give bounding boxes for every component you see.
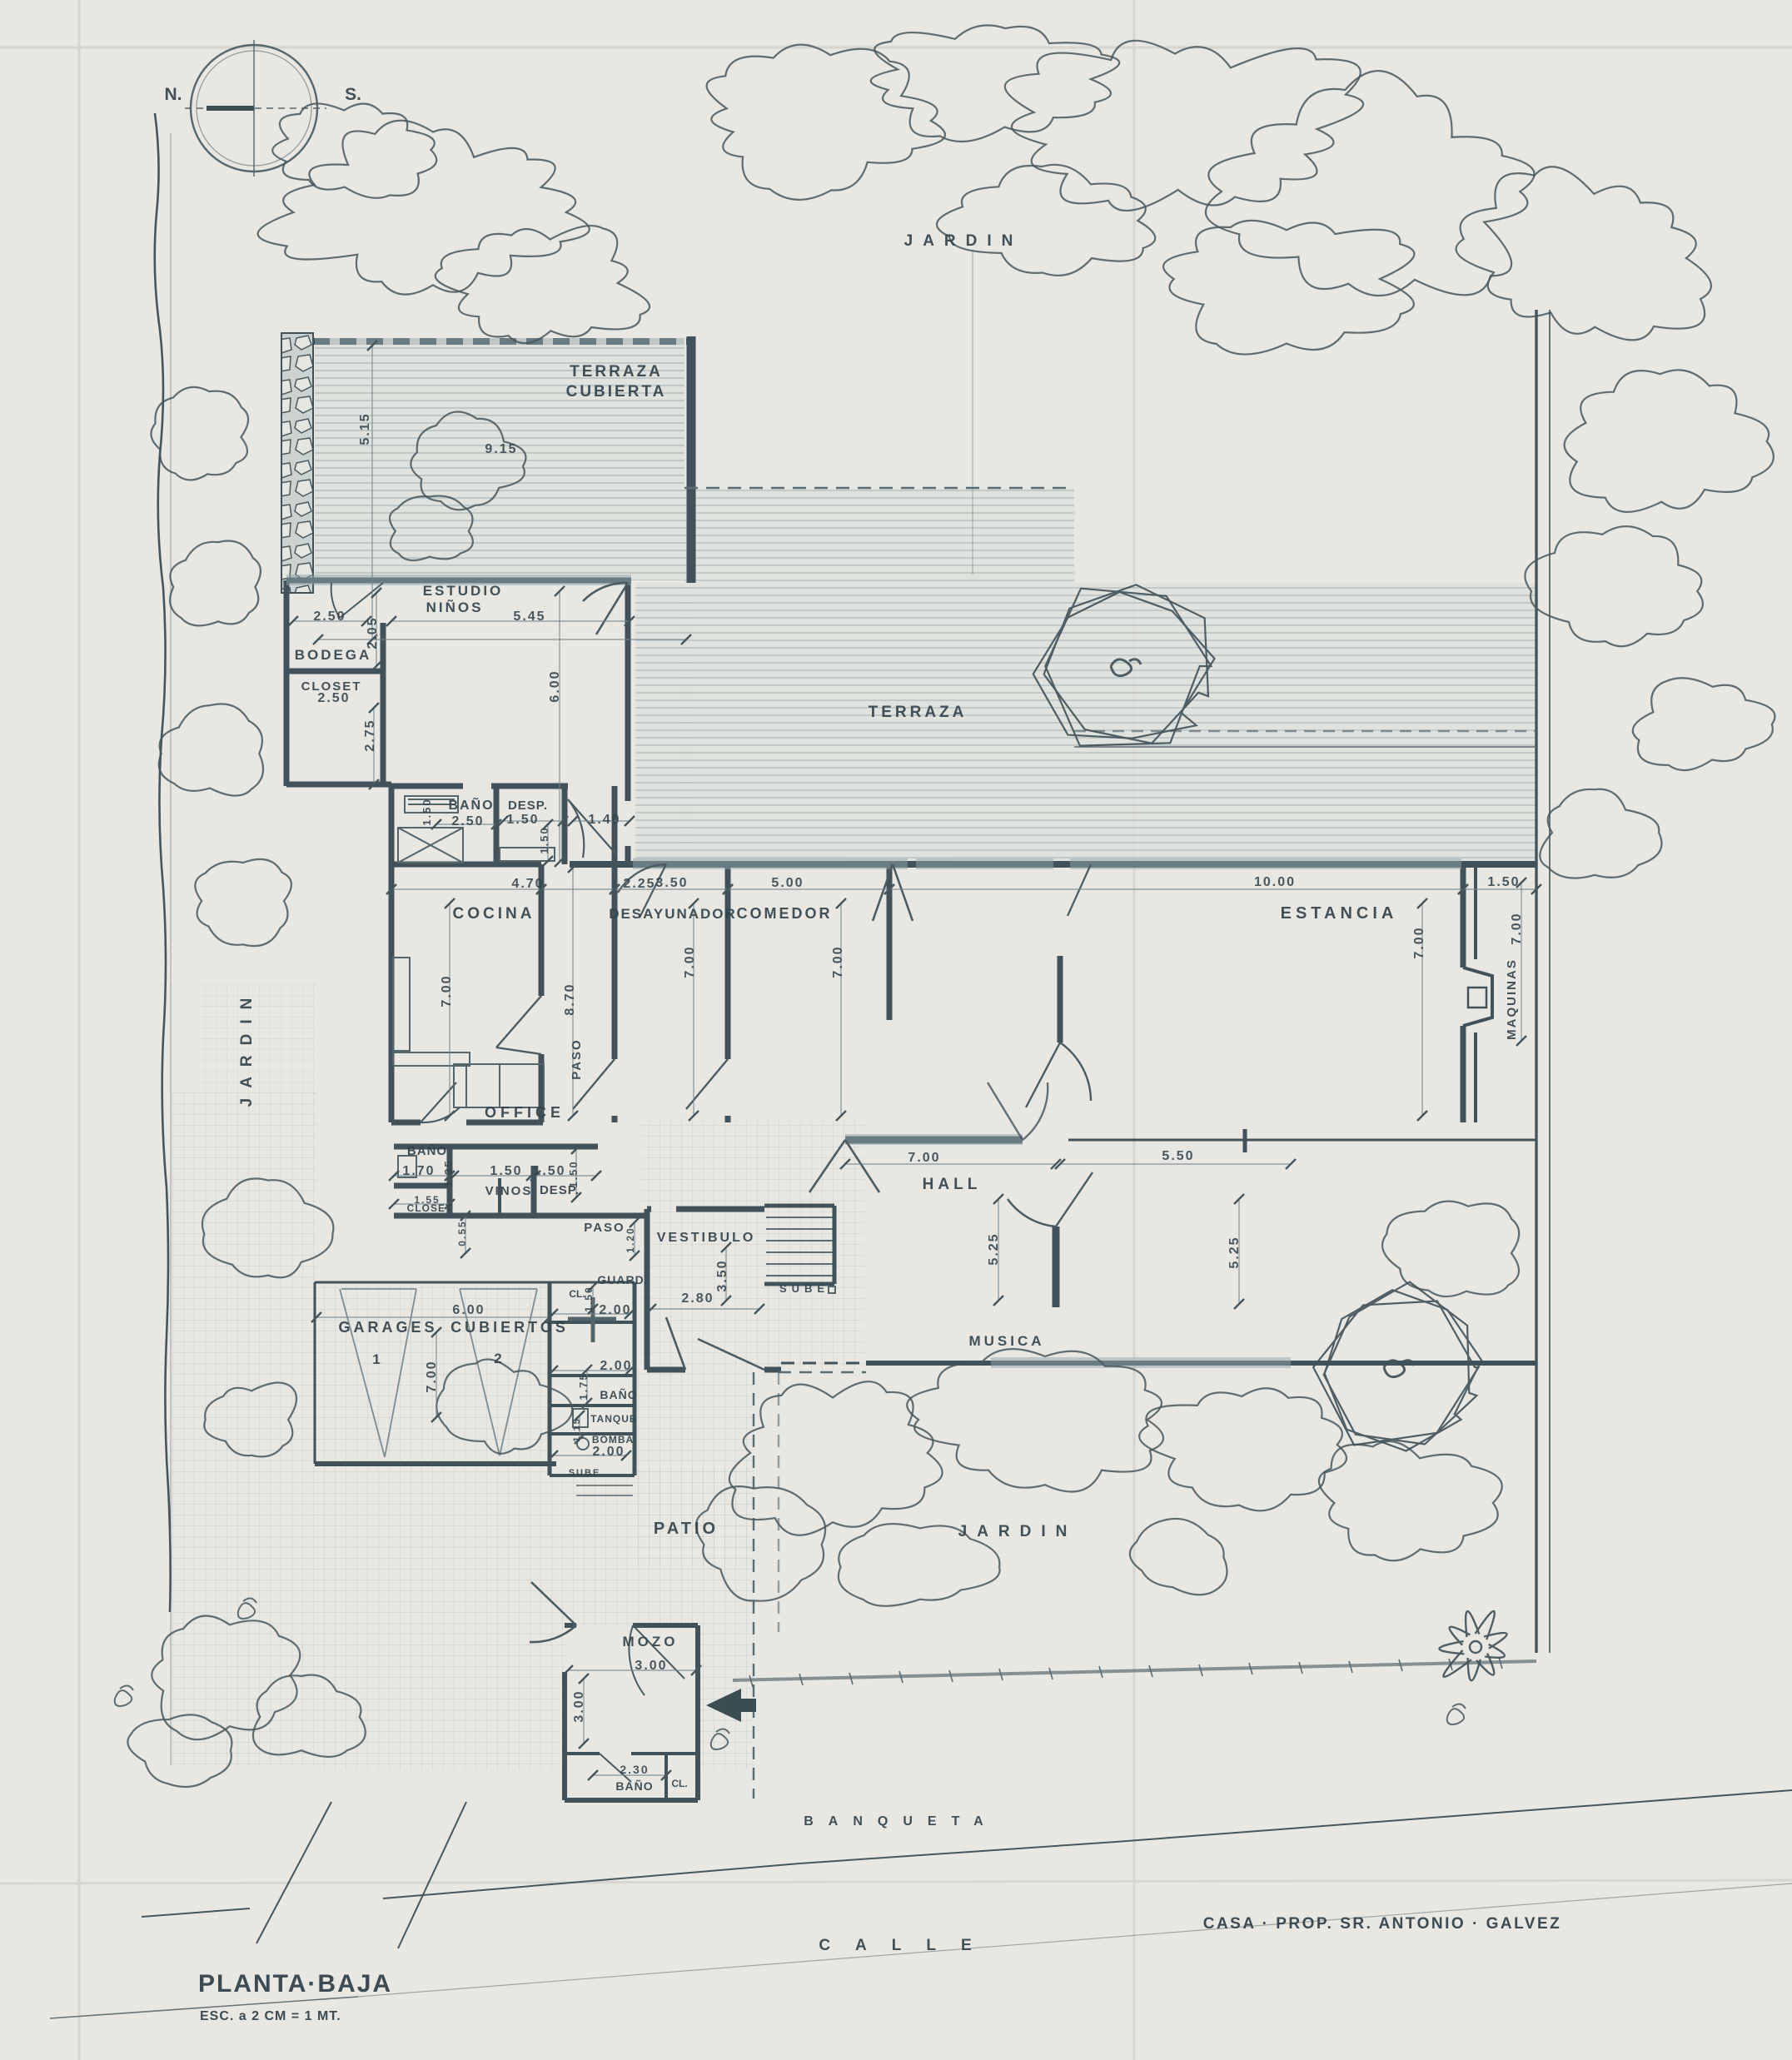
dimension-label: 1.50 bbox=[1487, 875, 1520, 889]
garden-label-west: JARDIN bbox=[238, 988, 256, 1107]
music-label: MUSICA bbox=[968, 1333, 1044, 1349]
dining-label: COMEDOR bbox=[737, 905, 833, 922]
dimension-label: 5.15 bbox=[358, 412, 372, 445]
compass-south-label: S. bbox=[345, 85, 361, 104]
bath-label-north: BAÑO bbox=[448, 796, 494, 813]
dimension-label: 6.00 bbox=[452, 1303, 485, 1317]
dimension-label: 1.50 bbox=[533, 1164, 565, 1178]
dimension-label: 7.00 bbox=[683, 945, 697, 978]
tank-label: TANQUE bbox=[590, 1413, 637, 1425]
dimension-label: 5.25 bbox=[987, 1232, 1001, 1265]
street-label: CALLE bbox=[819, 1937, 996, 1954]
hall-label: HALL bbox=[923, 1176, 982, 1193]
plan-scale-note: ESC. a 2 CM = 1 MT. bbox=[200, 2009, 341, 2023]
vestibule-label: VESTIBULO bbox=[657, 1231, 756, 1245]
dimension-label: 2.75 bbox=[363, 719, 377, 751]
dimension-label: 2.50 bbox=[317, 691, 350, 705]
servant-label: MOZO bbox=[623, 1634, 679, 1649]
covered-terrace-label2: CUBIERTA bbox=[566, 383, 667, 401]
dimension-label: 2.50 bbox=[313, 610, 346, 624]
dimension-label: 1.50 bbox=[567, 1160, 580, 1187]
dimension-label: 10.00 bbox=[1254, 875, 1296, 889]
pantry-label-north: DESP. bbox=[508, 799, 548, 813]
dimension-label: 5.25 bbox=[1227, 1236, 1242, 1268]
dimension-label: 7.00 bbox=[440, 974, 454, 1007]
breakfast-label: DESAYUNADOR bbox=[609, 906, 737, 922]
dimension-label: 1.75 bbox=[577, 1372, 590, 1400]
dimension-label: 5.45 bbox=[513, 610, 545, 624]
dimension-label: 5.00 bbox=[771, 876, 804, 890]
covered-terrace-label: TERRAZA bbox=[570, 363, 663, 381]
storage-guard-label: GUARD. bbox=[597, 1273, 648, 1286]
garage-1-label: 1 bbox=[372, 1351, 380, 1367]
dimension-label: 3.00 bbox=[572, 1689, 586, 1722]
garages-label: GARAGES bbox=[338, 1319, 437, 1336]
dimension-label: 8.70 bbox=[563, 983, 577, 1015]
project-caption: CASA · PROP. SR. ANTONIO · GALVEZ bbox=[1203, 1915, 1562, 1933]
plan-title: PLANTA·BAJA bbox=[198, 1970, 392, 1998]
bath-label-office: BAÑO bbox=[407, 1143, 447, 1158]
corridor-label: PASO bbox=[570, 1038, 584, 1079]
dimension-label: 7.00 bbox=[425, 1360, 439, 1392]
dimension-label: 1.50 bbox=[506, 813, 539, 827]
dimension-label: 3.50 bbox=[655, 876, 688, 890]
dimension-label: 2.00 bbox=[599, 1303, 631, 1317]
terrace-label: TERRAZA bbox=[869, 704, 968, 721]
steps-up-small-label: SUBE bbox=[569, 1468, 601, 1478]
dimension-label: 1.50 bbox=[538, 826, 550, 853]
dimension-label: 3.00 bbox=[635, 1659, 667, 1673]
garden-label-south: JARDIN bbox=[958, 1523, 1078, 1540]
dimension-label: 5.50 bbox=[1162, 1149, 1194, 1163]
dimension-label: 1.15 bbox=[572, 1417, 582, 1441]
pump-label: BOMBA bbox=[592, 1434, 634, 1445]
stairs-up-label: SUBE bbox=[779, 1282, 829, 1295]
dimension-label: 2.80 bbox=[681, 1291, 714, 1306]
kitchen-label: COCINA bbox=[453, 905, 535, 923]
dimension-label: 7.00 bbox=[1412, 926, 1426, 958]
dimension-label: 6.00 bbox=[548, 669, 562, 702]
storage-label: BODEGA bbox=[295, 647, 372, 663]
dimension-label: 2.00 bbox=[592, 1445, 625, 1459]
dimension-label: 2.30 bbox=[620, 1763, 649, 1776]
dimension-label: 2.25 bbox=[623, 877, 655, 891]
dimension-label: 1.50 bbox=[583, 1286, 595, 1311]
living-label: ESTANCIA bbox=[1281, 904, 1398, 923]
dimension-label: 9.15 bbox=[485, 442, 517, 456]
dimension-label: 1.70 bbox=[402, 1164, 435, 1178]
passage-label: PASO bbox=[584, 1221, 625, 1235]
closet-label-mozo: CL. bbox=[671, 1778, 687, 1789]
patio-label: PATIO bbox=[654, 1520, 719, 1538]
study-label2: NIÑOS bbox=[426, 599, 484, 615]
study-label: ESTUDIO bbox=[423, 583, 504, 599]
bath-label-service: BAÑO bbox=[600, 1387, 637, 1401]
wine-label: VINOS bbox=[485, 1184, 533, 1198]
garden-label-top: JARDIN bbox=[904, 232, 1023, 250]
garages-label2: CUBIERTOS bbox=[450, 1319, 569, 1336]
dimension-label: 7.00 bbox=[908, 1151, 940, 1165]
dimension-label: 4.70 bbox=[511, 877, 544, 891]
dimension-label: 2.05 bbox=[366, 616, 380, 649]
dimension-label: 3.50 bbox=[715, 1259, 729, 1291]
dimension-label: 2.00 bbox=[600, 1359, 632, 1373]
machines-label: MAQUINAS bbox=[1505, 958, 1519, 1040]
dimension-label: 0.55 bbox=[456, 1220, 468, 1246]
floor-plan-drawing: N. S. JARDINJARDINJARDINPATIOBANQUETACAL… bbox=[0, 0, 1792, 2060]
compass-north-label: N. bbox=[165, 85, 182, 104]
office-label: OFFICE bbox=[485, 1104, 565, 1121]
dimension-label: 7.00 bbox=[831, 945, 845, 978]
dimension-label: 1.40 bbox=[588, 813, 620, 827]
dimension-label: 1.55 bbox=[414, 1194, 440, 1206]
dimension-label: 1.20 bbox=[625, 1227, 636, 1252]
sidewalk-label: BANQUETA bbox=[804, 1814, 998, 1829]
dimension-label: 7.00 bbox=[1510, 912, 1524, 944]
dimension-label: 1.50 bbox=[421, 798, 433, 825]
dimension-label: 1.50 bbox=[490, 1164, 522, 1178]
garage-2-label: 2 bbox=[494, 1351, 501, 1366]
dimension-label: 2.50 bbox=[451, 814, 484, 828]
dimension-label: 1.35 bbox=[442, 1159, 455, 1187]
blueprint-sheet: N. S. JARDINJARDINJARDINPATIOBANQUETACAL… bbox=[0, 0, 1792, 2060]
bath-label-mozo: BAÑO bbox=[615, 1779, 653, 1793]
